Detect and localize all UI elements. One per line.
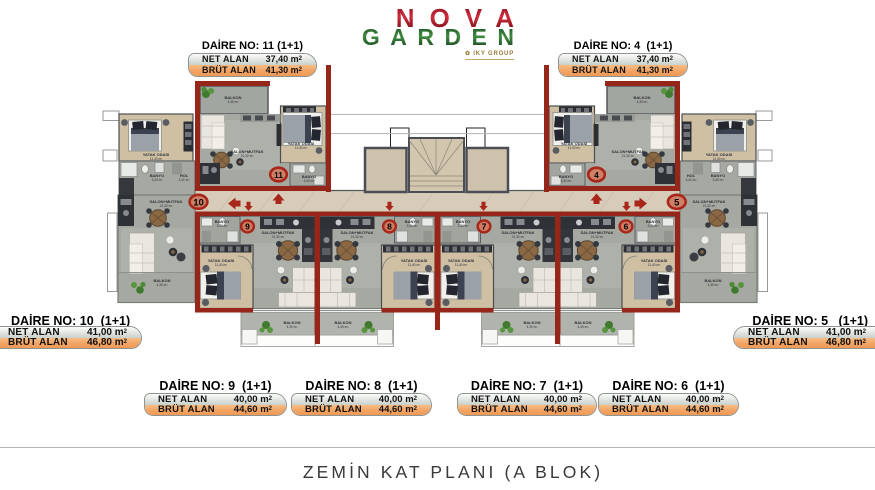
svg-text:4,30 m²: 4,30 m²	[578, 325, 589, 329]
svg-text:21,32 m²: 21,32 m²	[272, 235, 285, 239]
svg-text:11,40 m²: 11,40 m²	[215, 263, 227, 267]
svg-text:11,40 m²: 11,40 m²	[150, 157, 162, 161]
svg-text:5: 5	[674, 197, 680, 208]
svg-text:11,40 m²: 11,40 m²	[648, 263, 660, 267]
svg-text:4,30 m²: 4,30 m²	[228, 100, 239, 104]
svg-text:11: 11	[274, 170, 283, 180]
svg-text:11,40 m²: 11,40 m²	[568, 146, 580, 150]
svg-text:11,40 m²: 11,40 m²	[713, 157, 725, 161]
svg-text:3,40 m²: 3,40 m²	[217, 224, 228, 228]
svg-text:11,40 m²: 11,40 m²	[295, 146, 307, 150]
svg-text:3,40 m²: 3,40 m²	[458, 224, 469, 228]
svg-text:10: 10	[193, 197, 204, 208]
svg-text:21,32 m²: 21,32 m²	[703, 204, 716, 208]
svg-text:4,30 m²: 4,30 m²	[157, 283, 168, 287]
svg-text:11,40 m²: 11,40 m²	[455, 263, 467, 267]
svg-text:4,30 m²: 4,30 m²	[708, 283, 719, 287]
svg-text:8: 8	[387, 222, 392, 232]
svg-text:4,30 m²: 4,30 m²	[338, 325, 349, 329]
svg-text:4,30 m²: 4,30 m²	[287, 325, 298, 329]
svg-text:3,40 m²: 3,40 m²	[304, 179, 315, 183]
svg-text:6: 6	[624, 222, 629, 232]
svg-text:21,32 m²: 21,32 m²	[512, 235, 525, 239]
svg-text:3,40 m²: 3,40 m²	[648, 224, 659, 228]
svg-text:7: 7	[482, 222, 487, 232]
svg-text:21,32 m²: 21,32 m²	[160, 204, 173, 208]
svg-text:4,30 m²: 4,30 m²	[527, 325, 538, 329]
svg-text:2,41 m²: 2,41 m²	[686, 178, 697, 182]
svg-text:21,32 m²: 21,32 m²	[591, 235, 604, 239]
svg-text:3,40 m²: 3,40 m²	[407, 224, 418, 228]
svg-text:3,40 m²: 3,40 m²	[561, 179, 572, 183]
svg-text:3,40 m²: 3,40 m²	[713, 178, 724, 182]
svg-text:4: 4	[594, 170, 599, 180]
svg-text:11,40 m²: 11,40 m²	[408, 263, 420, 267]
svg-text:3,40 m²: 3,40 m²	[152, 178, 163, 182]
svg-text:21,32 m²: 21,32 m²	[241, 154, 254, 158]
svg-text:21,32 m²: 21,32 m²	[622, 154, 635, 158]
svg-text:2,41 m²: 2,41 m²	[179, 178, 190, 182]
svg-text:4,30 m²: 4,30 m²	[637, 100, 648, 104]
svg-text:21,32 m²: 21,32 m²	[351, 235, 364, 239]
svg-text:9: 9	[245, 222, 250, 232]
